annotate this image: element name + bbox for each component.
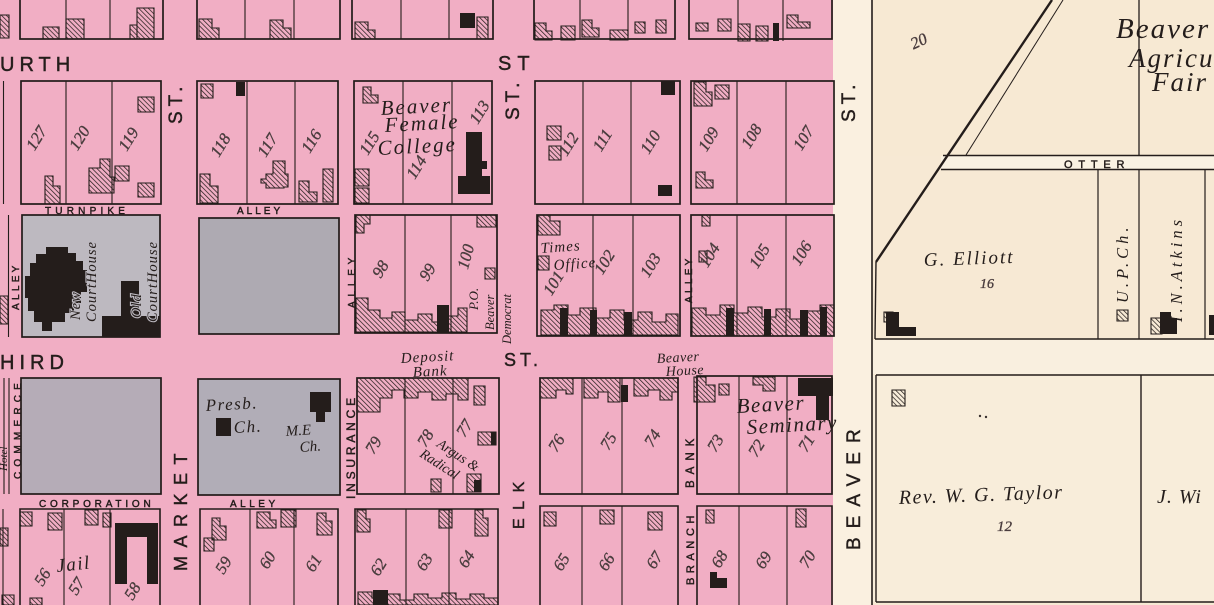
svg-text:Office: Office bbox=[553, 255, 597, 274]
svg-text:ALLEY: ALLEY bbox=[230, 499, 279, 510]
svg-text:I.N.Atkins: I.N.Atkins bbox=[1167, 216, 1186, 323]
svg-text:P.O.: P.O. bbox=[466, 288, 481, 311]
svg-text:G. Elliott: G. Elliott bbox=[923, 247, 1014, 271]
svg-text:CourtHouse: CourtHouse bbox=[84, 241, 100, 322]
svg-text:HIRD: HIRD bbox=[0, 352, 69, 374]
svg-text:House: House bbox=[664, 363, 704, 380]
svg-text:ST.: ST. bbox=[166, 82, 187, 124]
svg-text:Hotel: Hotel bbox=[0, 447, 10, 472]
svg-text:Fair: Fair bbox=[1151, 67, 1208, 97]
svg-text:ALLEY: ALLEY bbox=[11, 262, 22, 310]
svg-text:Seminary: Seminary bbox=[746, 410, 838, 439]
svg-text:ST.: ST. bbox=[503, 78, 524, 120]
svg-text:BRANCH: BRANCH bbox=[685, 511, 697, 585]
svg-text:Jail: Jail bbox=[55, 552, 92, 576]
svg-text:TURNPIKE: TURNPIKE bbox=[45, 206, 129, 217]
svg-text:ALLEY: ALLEY bbox=[237, 206, 283, 217]
svg-text:Presb.: Presb. bbox=[204, 393, 258, 415]
svg-text:Ch.: Ch. bbox=[299, 439, 321, 456]
svg-text:Bank: Bank bbox=[412, 363, 448, 381]
svg-text:BEAVER: BEAVER bbox=[844, 420, 865, 550]
svg-text:MARKET: MARKET bbox=[171, 445, 191, 571]
svg-text:CORPORATION: CORPORATION bbox=[39, 499, 155, 510]
svg-text:COMMERCE: COMMERCE bbox=[13, 378, 24, 479]
svg-text:CourtHouse: CourtHouse bbox=[145, 241, 161, 322]
svg-text:New: New bbox=[68, 291, 84, 321]
svg-text:ST.: ST. bbox=[504, 350, 542, 370]
svg-text:ALLEY: ALLEY bbox=[347, 253, 358, 308]
svg-text:Old: Old bbox=[129, 293, 145, 318]
svg-text:Beaver: Beaver bbox=[1116, 13, 1210, 45]
svg-text:ST.: ST. bbox=[839, 80, 860, 122]
svg-text:Beaver: Beaver bbox=[483, 294, 497, 330]
svg-text:Times: Times bbox=[540, 238, 581, 257]
svg-text:J. Wi: J. Wi bbox=[1157, 486, 1202, 508]
svg-text:ELK: ELK bbox=[511, 473, 528, 529]
svg-text:M.E: M.E bbox=[284, 422, 311, 440]
svg-text:INSURANCE: INSURANCE bbox=[344, 394, 358, 499]
svg-text:U.P.Ch.: U.P.Ch. bbox=[1113, 224, 1132, 304]
svg-text:16: 16 bbox=[980, 277, 994, 292]
svg-text:OTTER: OTTER bbox=[1064, 159, 1130, 171]
svg-text:Democrat: Democrat bbox=[500, 293, 514, 345]
svg-text:12: 12 bbox=[997, 519, 1013, 535]
svg-text:BANK: BANK bbox=[685, 433, 697, 488]
svg-text:ST: ST bbox=[498, 53, 536, 75]
svg-text:Ch.: Ch. bbox=[233, 417, 263, 437]
svg-text:URTH: URTH bbox=[0, 54, 75, 76]
svg-text:ALLEY: ALLEY bbox=[684, 255, 695, 303]
